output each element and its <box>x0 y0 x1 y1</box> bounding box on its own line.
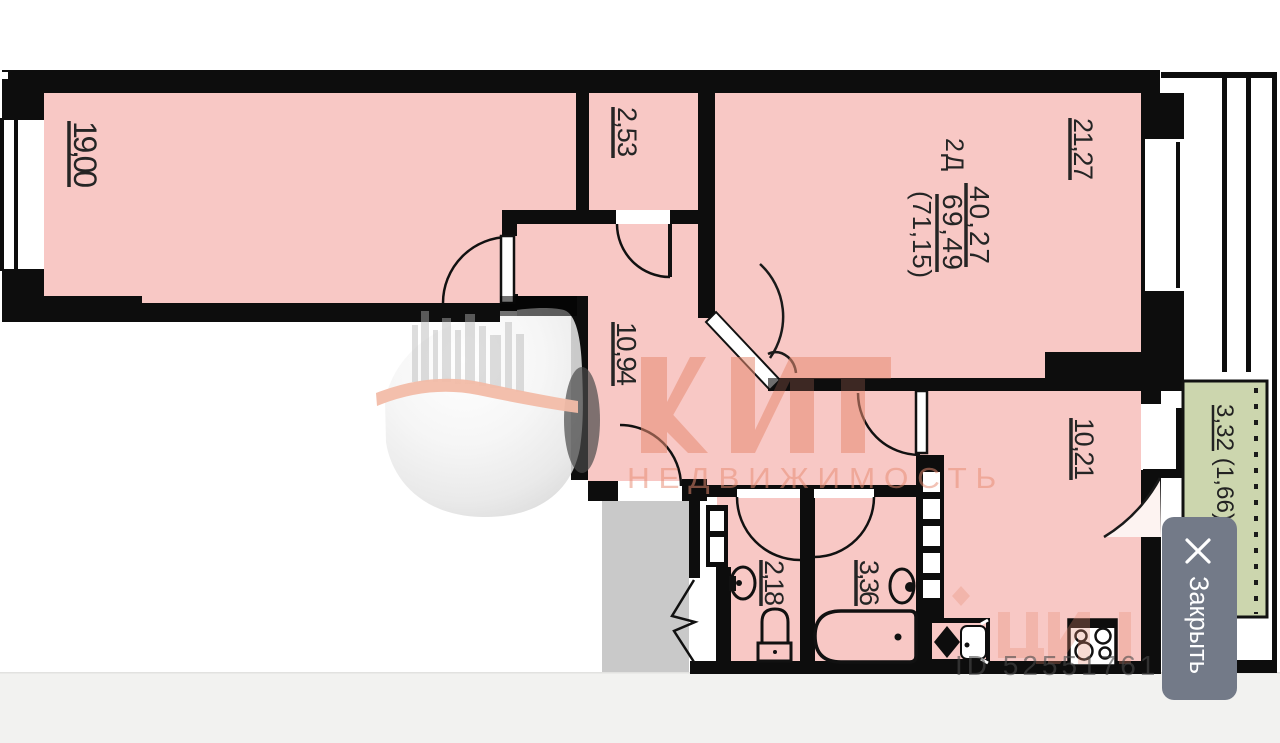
svg-text:3,36: 3,36 <box>854 560 884 606</box>
svg-text:10,94: 10,94 <box>611 322 642 386</box>
svg-text:ID 52551761: ID 52551761 <box>955 650 1159 681</box>
svg-text:21,27: 21,27 <box>1068 118 1098 180</box>
svg-text:10,21: 10,21 <box>1069 418 1099 480</box>
svg-text:3,32 (1,66): 3,32 (1,66) <box>1211 404 1238 521</box>
svg-text:2Д: 2Д <box>940 138 968 171</box>
svg-text:69,49: 69,49 <box>937 194 968 270</box>
svg-text:19,00: 19,00 <box>67 121 103 188</box>
svg-text:2,53: 2,53 <box>612 107 642 157</box>
svg-text:НЕДВИЖИМОСТЬ: НЕДВИЖИМОСТЬ <box>627 463 1005 495</box>
svg-text:(71,15): (71,15) <box>907 191 937 278</box>
svg-text:2,18: 2,18 <box>759 560 789 606</box>
svg-text:Закрыть: Закрыть <box>1184 576 1214 674</box>
